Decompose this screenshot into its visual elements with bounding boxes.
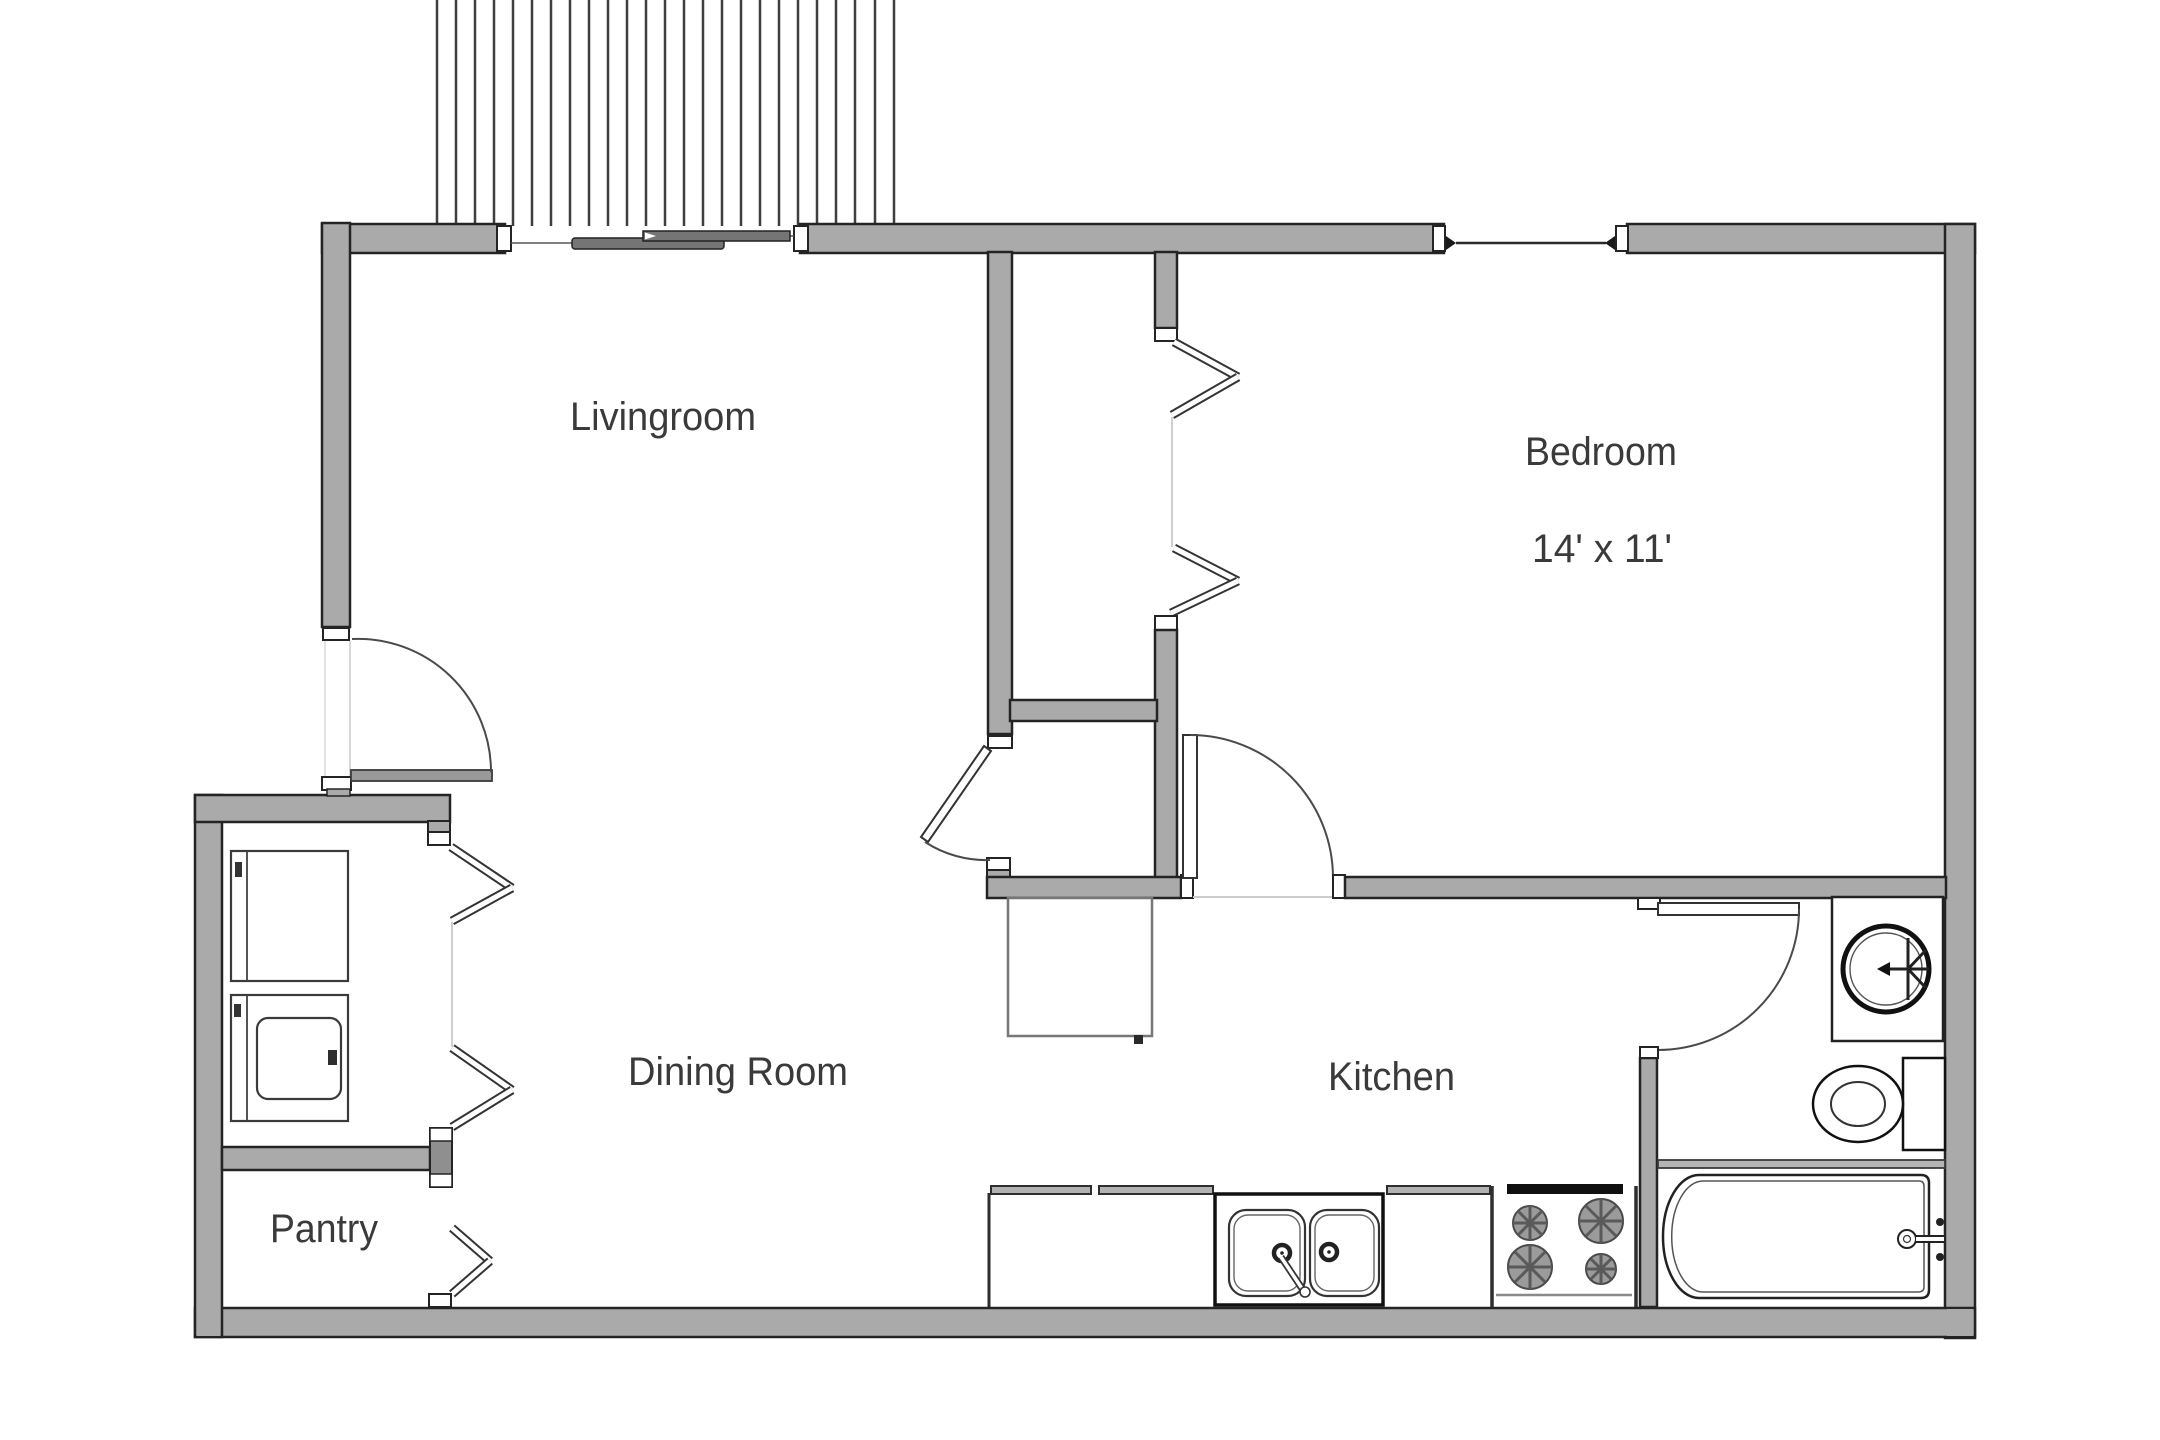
- svg-text:Livingroom: Livingroom: [570, 395, 756, 439]
- svg-text:14' x 11': 14' x 11': [1532, 527, 1672, 571]
- svg-text:Pantry: Pantry: [270, 1207, 378, 1251]
- svg-text:Kitchen: Kitchen: [1328, 1055, 1455, 1099]
- svg-text:Dining Room: Dining Room: [628, 1050, 848, 1094]
- svg-text:Bedroom: Bedroom: [1525, 430, 1677, 474]
